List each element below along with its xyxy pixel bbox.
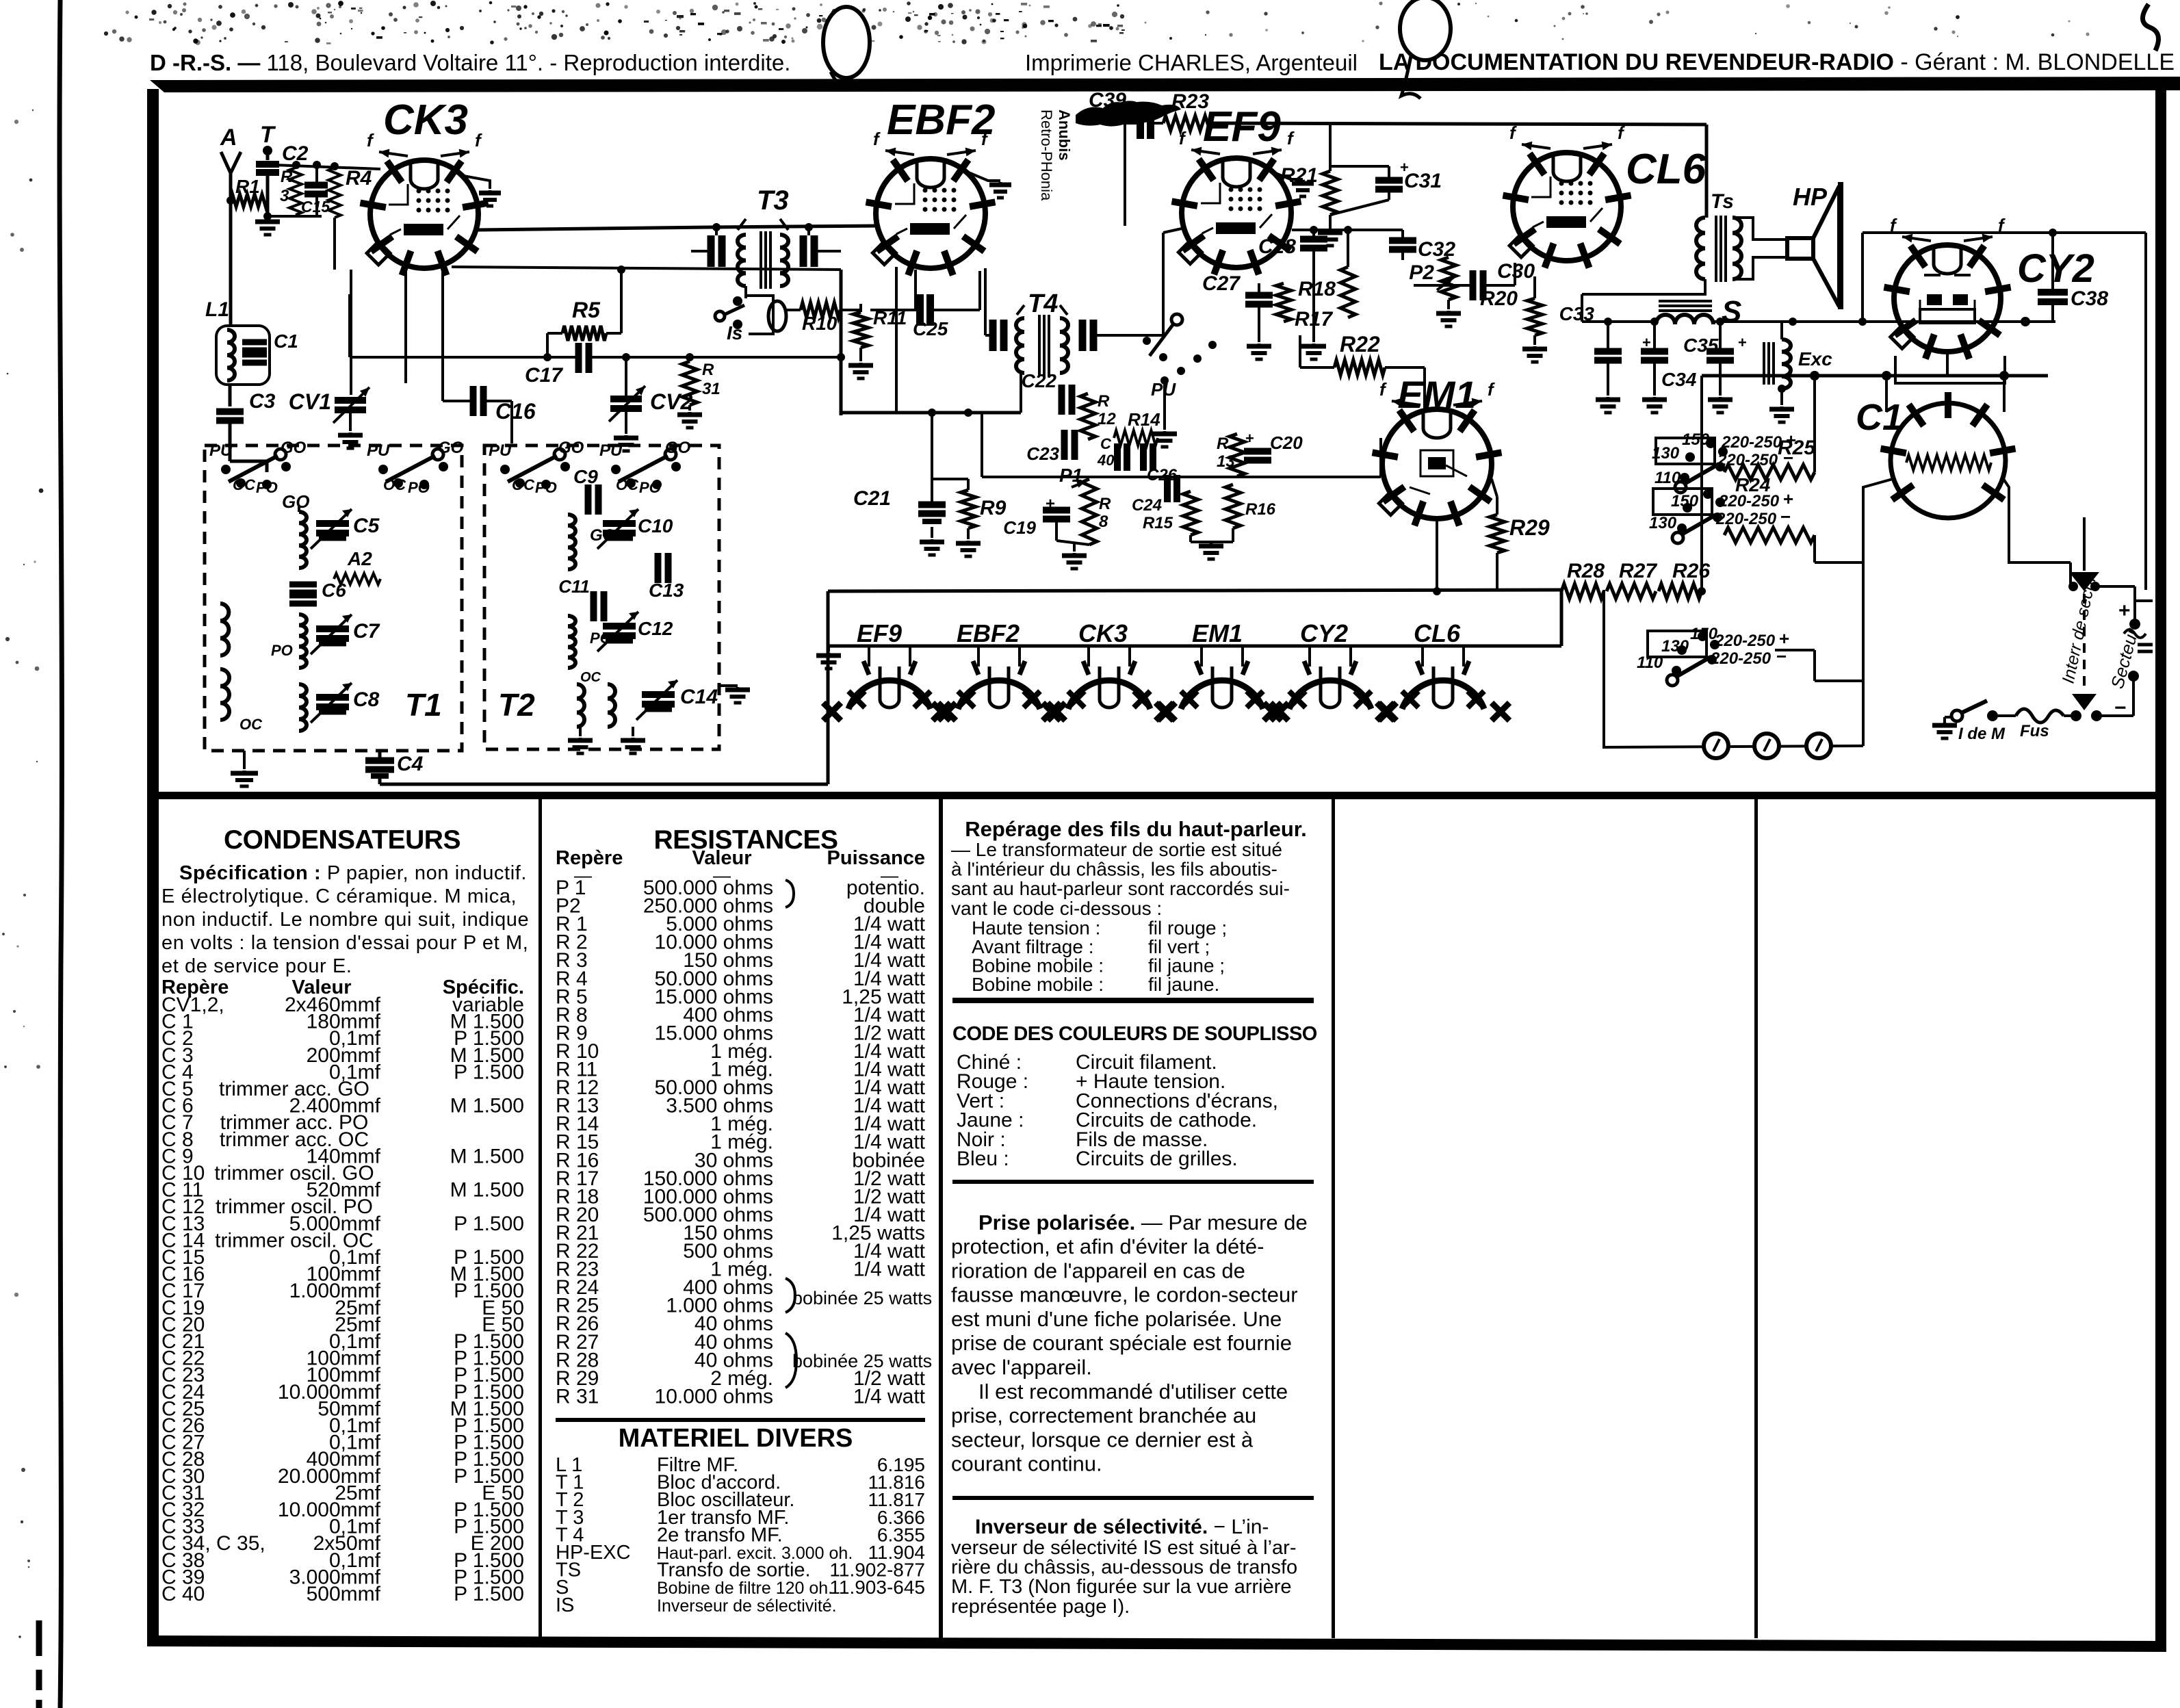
svg-text:T: T — [260, 122, 276, 148]
svg-text:CONDENSATEURS: CONDENSATEURS — [224, 825, 460, 855]
svg-text:CY2: CY2 — [2017, 246, 2094, 291]
svg-text:C12: C12 — [638, 618, 673, 639]
svg-text:C7: C7 — [353, 620, 380, 643]
svg-text:R 31: R 31 — [556, 1385, 599, 1408]
svg-text:GO: GO — [282, 491, 309, 512]
svg-text:PO: PO — [271, 642, 293, 659]
svg-text:bobinée 25 watts: bobinée 25 watts — [792, 1351, 932, 1371]
svg-text:f: f — [873, 129, 881, 149]
svg-text:CK3: CK3 — [383, 96, 468, 144]
svg-text:130: 130 — [1649, 514, 1677, 532]
svg-text:C39: C39 — [1089, 89, 1126, 112]
svg-text:Retro-PHonia: Retro-PHonia — [1038, 109, 1055, 201]
svg-text:R16: R16 — [1245, 500, 1276, 519]
svg-text:C1: C1 — [274, 331, 298, 352]
svg-text:GO: GO — [665, 439, 691, 457]
svg-text:C26: C26 — [1147, 466, 1178, 484]
svg-text:3: 3 — [280, 187, 289, 205]
svg-text:Il est recommandé d'utilise: Il est recommandé d'utiliser cette — [978, 1380, 1288, 1403]
svg-text:C4: C4 — [397, 753, 424, 775]
svg-text:C: C — [1100, 435, 1112, 452]
svg-text:+: + — [1738, 334, 1747, 351]
svg-text:C34: C34 — [1661, 369, 1697, 390]
svg-text:12: 12 — [1098, 410, 1116, 428]
svg-text:f: f — [1287, 128, 1295, 148]
svg-text:PO: PO — [639, 479, 661, 496]
svg-text:avec l'appareil.: avec l'appareil. — [951, 1356, 1092, 1380]
svg-text:Inverseur de sélectivité.: Inverseur de sélectivité. — [657, 1596, 837, 1616]
svg-text:OC: OC — [512, 476, 535, 493]
svg-text:C32: C32 — [1418, 238, 1455, 261]
svg-text:R28: R28 — [1567, 560, 1605, 582]
svg-text:Is: Is — [727, 322, 742, 344]
svg-text:1/4 watt: 1/4 watt — [853, 1385, 926, 1408]
svg-text:non inductif. Le nombre qu: non inductif. Le nombre qui suit, indiqu… — [161, 909, 529, 931]
svg-text:fil vert ;: fil vert ; — [1148, 936, 1210, 957]
svg-text:R29: R29 — [1509, 515, 1550, 540]
svg-text:P 1.500: P 1.500 — [454, 1213, 524, 1235]
svg-text:Bleu :: Bleu : — [957, 1148, 1009, 1170]
svg-text:OC: OC — [239, 716, 263, 733]
svg-text:C28: C28 — [1258, 235, 1296, 258]
svg-text:Prise polarisée. — Par mes: Prise polarisée. — Par mesure de — [978, 1211, 1308, 1234]
svg-text:220-250: 220-250 — [1721, 433, 1782, 452]
svg-text:courant continu.: courant continu. — [951, 1452, 1102, 1476]
svg-text:Repérage des fils du haut-: Repérage des fils du haut-parleur. — [965, 817, 1307, 841]
svg-text:C21: C21 — [853, 487, 891, 510]
svg-text:−: − — [1780, 506, 1791, 527]
svg-text:Avant filtrage :: Avant filtrage : — [972, 936, 1093, 957]
svg-text:220-250: 220-250 — [1715, 510, 1777, 528]
svg-text:GO: GO — [558, 439, 584, 457]
svg-text:Puissance: Puissance — [827, 847, 925, 869]
svg-text:R: R — [1098, 392, 1110, 411]
svg-text:2e transfo MF.: 2e transfo MF. — [657, 1524, 783, 1546]
svg-text:C27: C27 — [1202, 272, 1241, 295]
svg-text:bobinée 25 watts: bobinée 25 watts — [792, 1288, 932, 1308]
svg-text:C14: C14 — [680, 686, 718, 708]
svg-text:R18: R18 — [1298, 278, 1336, 300]
svg-text:+: + — [1400, 159, 1409, 176]
svg-text:T3: T3 — [757, 185, 789, 216]
svg-text:C24: C24 — [1132, 496, 1162, 515]
svg-text:GO: GO — [281, 439, 307, 457]
svg-text:C8: C8 — [353, 688, 380, 711]
svg-text:R21: R21 — [1280, 164, 1318, 187]
svg-text:A2: A2 — [347, 548, 372, 569]
svg-text:sant au haut-parleur sont: sant au haut-parleur sont raccordés sui- — [951, 878, 1290, 899]
svg-text:CK3: CK3 — [1078, 619, 1128, 647]
svg-text:Ts: Ts — [1711, 190, 1734, 213]
svg-text:R14: R14 — [1128, 409, 1160, 430]
svg-text:C16: C16 — [495, 399, 536, 424]
svg-text:MATERIEL DIVERS: MATERIEL DIVERS — [619, 1424, 853, 1453]
svg-text:M 1.500: M 1.500 — [450, 1179, 524, 1202]
svg-text:P 1.500: P 1.500 — [454, 1061, 524, 1083]
svg-text:PU: PU — [367, 441, 390, 460]
svg-text:Bobine mobile :: Bobine mobile : — [972, 955, 1104, 976]
svg-text:prise de courant spéciale: prise de courant spéciale est fournie — [951, 1331, 1292, 1355]
svg-text:EF9: EF9 — [1203, 103, 1281, 151]
svg-text:Imprimerie CHARLES, Argenteui: Imprimerie CHARLES, Argenteuil — [1025, 50, 1358, 75]
svg-text:M. F. T3 (Non figurée sur la: M. F. T3 (Non figurée sur la vue arrière — [951, 1576, 1292, 1598]
svg-text:R26: R26 — [1672, 560, 1710, 582]
svg-text:C33: C33 — [1559, 303, 1595, 324]
svg-text:T4: T4 — [1028, 289, 1058, 318]
svg-text:GO: GO — [438, 439, 464, 457]
svg-text:CV2: CV2 — [650, 389, 692, 414]
svg-text:C17: C17 — [525, 364, 563, 387]
svg-text:OC: OC — [233, 476, 256, 493]
svg-text:220-250: 220-250 — [1714, 632, 1776, 650]
svg-text:150: 150 — [1682, 430, 1710, 449]
svg-text:R4: R4 — [346, 167, 372, 190]
svg-text:C5: C5 — [353, 515, 380, 537]
svg-text:R20: R20 — [1480, 287, 1518, 310]
svg-text:Haute tension :: Haute tension : — [972, 917, 1100, 938]
svg-text:HP: HP — [1793, 183, 1828, 211]
svg-text:C6: C6 — [322, 580, 346, 601]
svg-text:C10: C10 — [638, 515, 673, 536]
svg-text:+: + — [1245, 430, 1254, 447]
svg-text:CV1: CV1 — [289, 389, 331, 414]
svg-text:M 1.500: M 1.500 — [450, 1095, 524, 1117]
svg-text:S: S — [1722, 295, 1741, 328]
svg-text:fil jaune.: fil jaune. — [1148, 974, 1219, 995]
svg-text:Spécification : P papier, n: Spécification : P papier, non inductif. — [179, 862, 527, 884]
svg-text:C23: C23 — [1026, 443, 1059, 464]
svg-text:T1: T1 — [405, 687, 442, 723]
svg-text:— Le transformateur de sor: — Le transformateur de sortie est situé — [951, 839, 1282, 860]
svg-text:500mmf: 500mmf — [307, 1583, 381, 1605]
svg-text:C31: C31 — [1404, 170, 1442, 192]
svg-text:OC: OC — [616, 476, 639, 493]
svg-text:secteur, lorsque ce dernier: secteur, lorsque ce dernier est à — [951, 1427, 1254, 1451]
svg-text:PO: PO — [408, 479, 430, 496]
svg-text:f: f — [367, 130, 374, 151]
svg-text:Bobine mobile :: Bobine mobile : — [972, 974, 1104, 995]
svg-text:EBF2: EBF2 — [957, 619, 1020, 647]
svg-text:EBF2: EBF2 — [887, 96, 995, 144]
svg-text:CL6: CL6 — [1414, 619, 1461, 647]
svg-text:CL6: CL6 — [1626, 146, 1707, 193]
svg-text:1/4 watt: 1/4 watt — [853, 1258, 926, 1281]
svg-text:L1: L1 — [205, 298, 229, 321]
svg-text:f: f — [475, 130, 482, 151]
svg-text:C38: C38 — [2071, 287, 2108, 310]
svg-text:f: f — [1488, 379, 1495, 400]
svg-text:R25: R25 — [1778, 437, 1816, 459]
svg-text:C3: C3 — [249, 390, 276, 413]
svg-text:PU: PU — [209, 441, 233, 460]
svg-text:Anubis: Anubis — [1056, 109, 1073, 161]
svg-text:représentée page I).: représentée page I). — [951, 1596, 1130, 1618]
svg-text:fausse manœuvre, le cordon-: fausse manœuvre, le cordon-secteur — [951, 1283, 1298, 1307]
svg-text:protection, et afin d'évite: protection, et afin d'éviter la dété- — [951, 1234, 1264, 1258]
svg-text:+: + — [1642, 334, 1651, 351]
svg-text:P2: P2 — [1409, 261, 1434, 284]
svg-text:CODE DES COULEURS DE SOUPLISSO: CODE DES COULEURS DE SOUPLISSO — [952, 1023, 1317, 1045]
svg-text:Circuits de grilles.: Circuits de grilles. — [1076, 1148, 1238, 1170]
svg-text:+: + — [2118, 599, 2131, 622]
svg-text:C13: C13 — [649, 580, 684, 601]
svg-text:R9: R9 — [980, 497, 1007, 519]
svg-text:PO: PO — [256, 479, 278, 496]
svg-text:et de service pour E.: et de service pour E. — [161, 955, 352, 977]
svg-text:E électrolytique. C céramiq: E électrolytique. C céramique. M mica, — [161, 885, 517, 907]
svg-text:C9: C9 — [573, 466, 598, 487]
svg-text:M 1.500: M 1.500 — [450, 1145, 524, 1167]
svg-text:C11: C11 — [558, 576, 590, 597]
svg-text:OC: OC — [580, 670, 601, 685]
svg-text:220-250: 220-250 — [1710, 649, 1772, 668]
svg-text:C20: C20 — [1270, 432, 1303, 453]
svg-text:C22: C22 — [1022, 370, 1057, 391]
svg-text:C19: C19 — [1003, 517, 1036, 538]
svg-text:f: f — [1379, 379, 1387, 400]
svg-text:R5: R5 — [572, 298, 601, 322]
svg-text:C25: C25 — [913, 318, 948, 339]
svg-text:en volts : la tension d'es: en volts : la tension d'essai pour P et … — [161, 932, 528, 954]
svg-text:prise, correctement branch: prise, correctement branchée au — [951, 1403, 1256, 1427]
svg-text:PU: PU — [599, 441, 623, 460]
svg-text:T2: T2 — [498, 687, 535, 723]
svg-text:31: 31 — [702, 380, 721, 398]
svg-text:PO: PO — [535, 479, 557, 496]
svg-text:Bobine de filtre 120 oh.: Bobine de filtre 120 oh. — [657, 1579, 833, 1598]
svg-text:R10: R10 — [802, 313, 838, 334]
svg-text:D -R.-S. — 118, Boulevard: D -R.-S. — 118, Boulevard Voltaire 11°. … — [150, 50, 790, 75]
svg-text:R15: R15 — [1143, 514, 1173, 532]
svg-text:8: 8 — [1099, 513, 1108, 531]
svg-text:R: R — [1099, 495, 1111, 513]
svg-text:vant le code ci-dessous :: vant le code ci-dessous : — [951, 898, 1162, 919]
svg-text:C35: C35 — [1683, 335, 1719, 356]
svg-text:P 1.500: P 1.500 — [454, 1583, 524, 1605]
svg-text:R: R — [702, 361, 714, 379]
svg-text:I de M: I de M — [1958, 725, 2006, 743]
svg-text:rioration de l'appareil: rioration de l'appareil en cas de — [951, 1258, 1245, 1282]
svg-text:R1: R1 — [235, 176, 260, 197]
svg-text:PU: PU — [489, 441, 512, 460]
svg-text:R27: R27 — [1619, 560, 1657, 582]
svg-text:R22: R22 — [1340, 332, 1380, 357]
svg-text:Inverseur de sélectivité. −: Inverseur de sélectivité. − L’in- — [975, 1516, 1269, 1538]
svg-text:40: 40 — [1097, 452, 1115, 469]
svg-text:Transfo de sortie.: Transfo de sortie. — [657, 1560, 811, 1581]
svg-text:LA DOCUMENTATION DU REVENDE: LA DOCUMENTATION DU REVENDEUR-RADIO - Gé… — [1379, 49, 2175, 75]
svg-text:+: + — [1046, 495, 1055, 513]
svg-text:10.000 ohms: 10.000 ohms — [655, 1385, 773, 1408]
svg-text:R: R — [281, 168, 293, 186]
svg-text:11.903-645: 11.903-645 — [829, 1577, 925, 1598]
svg-text:R24: R24 — [1735, 474, 1771, 495]
svg-text:Exc: Exc — [1798, 348, 1832, 370]
svg-text:A: A — [220, 125, 237, 151]
svg-text:rière du châssis, au-dessous: rière du châssis, au-dessous de transfo — [951, 1557, 1297, 1579]
svg-text:fil jaune ;: fil jaune ; — [1148, 955, 1225, 976]
svg-text:IS: IS — [556, 1594, 574, 1616]
svg-text:CY2: CY2 — [1300, 619, 1348, 647]
svg-text:est muni d'une fiche polar: est muni d'une fiche polarisée. Une — [951, 1307, 1282, 1331]
svg-text:fil rouge ;: fil rouge ; — [1148, 917, 1227, 938]
svg-text:Fus: Fus — [2020, 722, 2049, 740]
svg-text:EF9: EF9 — [857, 619, 902, 647]
svg-text:verseur de sélectivité IS: verseur de sélectivité IS est situé à l’… — [951, 1537, 1296, 1559]
svg-text:EM1: EM1 — [1192, 619, 1243, 647]
svg-text:R23: R23 — [1171, 90, 1209, 113]
svg-text:EM1: EM1 — [1397, 373, 1476, 416]
svg-text:à l'intérieur du châssis,: à l'intérieur du châssis, les fils about… — [951, 859, 1277, 880]
svg-text:C 40: C 40 — [161, 1583, 205, 1605]
svg-text:C1: C1 — [1856, 397, 1903, 438]
svg-text:OC: OC — [383, 476, 406, 493]
